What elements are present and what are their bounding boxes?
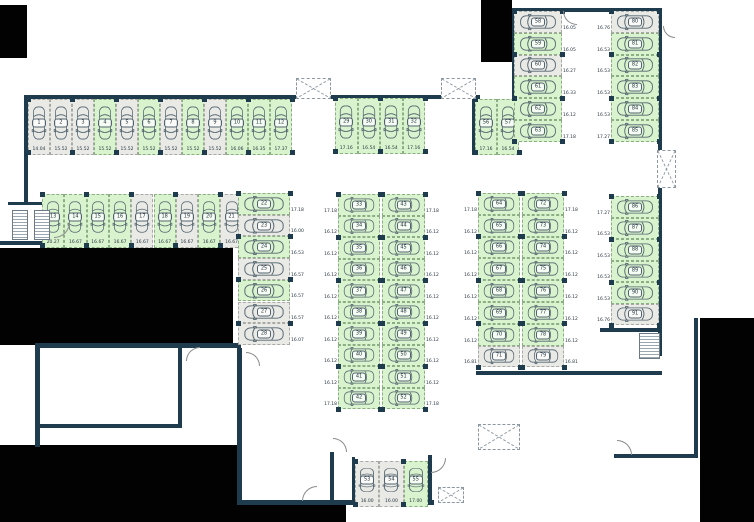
void-area [700,318,754,522]
column-marker [218,243,223,248]
vent-shaft-icon [657,150,676,188]
stall-number: 53 [360,476,374,485]
column-marker [520,321,525,326]
column-marker [560,139,565,144]
stall-number: 64 [492,199,506,208]
parking-stall-77[interactable]: 7716.12 [522,302,564,324]
column-marker [378,149,383,154]
stall-number: 58 [531,17,545,26]
parking-stall-28[interactable]: 2816.07 [238,323,290,345]
stall-number: 85 [628,126,642,135]
stall-size-label: 16.53 [597,297,610,303]
parking-stall-5[interactable]: 515.52 [116,99,138,155]
stall-size-label: 16.12 [324,252,337,258]
parking-stall-88[interactable]: 8816.53 [611,239,659,261]
stall-size-label: 15.52 [143,147,156,153]
parking-stall-50[interactable]: 5016.12 [382,345,425,367]
stall-size-label: 16.12 [565,317,578,323]
parking-stall-82[interactable]: 8216.53 [611,55,659,77]
stall-number: 38 [352,308,366,317]
stall-number: 39 [352,329,366,338]
parking-stall-60[interactable]: 6016.27 [514,55,562,77]
parking-stall-59[interactable]: 5916.05 [514,33,562,55]
parking-stall-81[interactable]: 8116.53 [611,33,659,55]
stall-size-label: 16.12 [426,273,439,279]
parking-stall-31[interactable]: 3116.54 [380,98,403,154]
column-marker [246,150,251,155]
stall-number: 52 [397,394,411,403]
stall-number: 77 [536,308,550,317]
column-marker [129,192,134,197]
column-marker [560,96,565,101]
column-marker [473,150,478,155]
stairs-icon [639,333,660,359]
parking-stall-87[interactable]: 8716.53 [611,218,659,240]
stall-number: 88 [628,245,642,254]
parking-stall-62[interactable]: 6216.12 [514,98,562,120]
stall-number: 73 [536,221,550,230]
parking-stall-90[interactable]: 9016.53 [611,282,659,304]
parking-stall-73[interactable]: 7316.12 [522,215,564,237]
stall-size-label: 15.52 [55,147,68,153]
stall-size-label: 16.12 [565,251,578,257]
column-marker [290,150,295,155]
stall-size-label: 15.52 [77,147,90,153]
column-marker [380,407,385,412]
parking-stall-74[interactable]: 7416.12 [522,237,564,259]
column-marker [562,365,567,370]
stall-number: 24 [257,243,271,252]
stall-number: 45 [397,243,411,252]
column-marker [26,97,31,102]
stall-size-label: 16.00 [361,499,374,505]
stall-number: 12 [274,119,288,128]
stall-number: 15 [91,213,105,222]
stairs-icon [12,210,28,240]
void-area [0,5,27,58]
parking-stall-66[interactable]: 6616.12 [478,237,520,259]
stall-size-label: 16.12 [563,113,576,119]
parking-stall-26[interactable]: 2616.57 [238,280,290,302]
door-arc [663,26,675,38]
column-marker [520,191,525,196]
parking-stall-19[interactable]: 1916.67 [176,194,198,248]
column-marker [657,280,662,285]
wall [694,318,698,458]
stall-number: 34 [352,222,366,231]
column-marker [423,278,428,283]
parking-stall-9[interactable]: 915.52 [204,99,226,155]
parking-stall-34[interactable]: 3416.12 [338,216,380,238]
stall-number: 21 [225,213,239,222]
column-marker [423,235,428,240]
column-marker [657,9,662,14]
column-marker [380,364,385,369]
stall-number: 25 [257,264,271,273]
stall-size-label: 16.12 [426,230,439,236]
stall-size-label: 15.52 [209,147,222,153]
parking-stall-63[interactable]: 6317.18 [514,120,562,142]
stall-number: 54 [384,476,398,485]
stall-size-label: 16.05 [563,48,576,54]
stall-number: 6 [142,119,156,128]
column-marker [423,192,428,197]
column-marker [562,234,567,239]
parking-stall-2[interactable]: 215.52 [50,99,72,155]
door-arc [302,486,317,501]
column-marker [246,97,251,102]
column-marker [336,321,341,326]
stall-number: 46 [397,265,411,274]
column-marker [333,96,338,101]
stall-size-label: 17.18 [464,208,477,214]
column-marker [40,192,45,197]
parking-stall-68[interactable]: 6816.12 [478,280,520,302]
column-marker [512,96,517,101]
stall-size-label: 16.67 [180,240,193,246]
stall-number: 18 [158,213,172,222]
parking-stall-76[interactable]: 7616.12 [522,280,564,302]
void-area [481,0,512,62]
stall-size-label: 16.05 [563,26,576,32]
stall-number: 69 [492,308,506,317]
parking-stall-91[interactable]: 9116.76 [611,304,659,326]
stall-size-label: 14.04 [33,147,46,153]
column-marker [70,97,75,102]
stall-number: 71 [492,352,506,361]
stall-number: 4 [98,119,112,128]
parking-stall-29[interactable]: 2917.16 [335,98,358,154]
stall-size-label: 17.16 [340,146,353,152]
column-marker [609,323,614,328]
stall-size-label: 16.81 [565,360,578,366]
stall-size-label: 16.12 [464,339,477,345]
parking-stall-11[interactable]: 1116.35 [248,99,270,155]
column-marker [401,459,406,464]
column-marker [70,150,75,155]
parking-stall-83[interactable]: 8316.53 [611,76,659,98]
parking-stall-18[interactable]: 1816.67 [154,194,176,248]
column-marker [380,235,385,240]
column-marker [158,150,163,155]
stall-size-label: 17.27 [597,211,610,217]
column-marker [609,9,614,14]
stall-number: 8 [186,119,200,128]
parking-stall-1[interactable]: 114.04 [28,99,50,155]
parking-stall-22[interactable]: 2217.18 [238,193,290,215]
stall-number: 35 [352,243,366,252]
stall-number: 50 [397,351,411,360]
column-marker [423,407,428,412]
column-marker [609,194,614,199]
stall-size-label: 16.76 [597,26,610,32]
stall-number: 10 [230,119,244,128]
stall-number: 11 [252,119,266,128]
parking-stall-89[interactable]: 8916.53 [611,261,659,283]
stall-number: 37 [352,286,366,295]
stall-number: 56 [479,119,493,128]
parking-stall-36[interactable]: 3616.12 [338,259,380,281]
stall-size-label: 17.00 [409,499,422,505]
parking-stall-55[interactable]: 5517.00 [404,461,428,507]
stall-number: 79 [536,352,550,361]
parking-stall-7[interactable]: 715.52 [160,99,182,155]
parking-stall-51[interactable]: 5116.12 [382,366,425,388]
parking-stall-14[interactable]: 1416.67 [64,194,86,248]
column-marker [353,502,358,507]
stall-number: 47 [397,286,411,295]
parking-stall-12[interactable]: 1217.37 [270,99,292,155]
stall-number: 72 [536,199,550,208]
column-marker [520,278,525,283]
stall-number: 51 [397,372,411,381]
stall-number: 74 [536,243,550,252]
column-marker [129,243,134,248]
parking-stall-52[interactable]: 5217.18 [382,388,425,410]
column-marker [290,97,295,102]
column-marker [512,52,517,57]
stall-size-label: 17.18 [324,209,337,215]
vent-shaft-icon [296,78,331,99]
column-marker [423,364,428,369]
stall-size-label: 16.67 [225,240,238,246]
parking-stall-25[interactable]: 2516.57 [238,258,290,280]
stall-number: 31 [384,118,398,127]
parking-stall-85[interactable]: 8517.27 [611,120,659,142]
stall-number: 67 [492,265,506,274]
parking-stall-38[interactable]: 3816.12 [338,302,380,324]
stall-number: 44 [397,222,411,231]
column-marker [562,191,567,196]
stall-size-label: 15.52 [121,147,134,153]
stall-size-label: 16.12 [426,316,439,322]
column-marker [609,96,614,101]
parking-stall-43[interactable]: 4317.18 [382,194,425,216]
parking-stall-27[interactable]: 2716.57 [238,302,290,324]
column-marker [336,278,341,283]
column-marker [657,96,662,101]
column-marker [657,194,662,199]
parking-stall-53[interactable]: 5316.00 [355,461,379,507]
column-marker [657,237,662,242]
column-marker [380,321,385,326]
stall-size-label: 17.18 [426,402,439,408]
parking-stall-32[interactable]: 3217.16 [403,98,426,154]
stall-size-label: 16.12 [426,381,439,387]
column-marker [380,192,385,197]
stall-number: 82 [628,61,642,70]
column-marker [476,234,481,239]
column-marker [173,243,178,248]
column-marker [288,321,293,326]
stall-size-label: 16.12 [426,252,439,258]
column-marker [476,278,481,283]
parking-stall-17[interactable]: 1716.67 [131,194,153,248]
stall-size-label: 16.06 [231,147,244,153]
parking-stall-78[interactable]: 7816.12 [522,324,564,346]
parking-stall-23[interactable]: 2316.00 [238,215,290,237]
stall-number: 70 [492,330,506,339]
column-marker [336,192,341,197]
stall-size-label: 16.67 [114,240,127,246]
column-marker [560,52,565,57]
column-marker [288,191,293,196]
stall-number: 59 [531,39,545,48]
column-marker [476,321,481,326]
parking-stall-6[interactable]: 615.52 [138,99,160,155]
parking-stall-80[interactable]: 8016.76 [611,11,659,33]
parking-stall-75[interactable]: 7516.12 [522,258,564,280]
column-marker [336,364,341,369]
parking-stall-45[interactable]: 4516.12 [382,237,425,259]
stall-size-label: 16.12 [426,338,439,344]
stall-size-label: 17.16 [480,147,493,153]
parking-stall-86[interactable]: 8617.27 [611,196,659,218]
door-arc [563,11,577,25]
wall [476,371,662,375]
stall-size-label: 16.54 [362,146,375,152]
column-marker [657,139,662,144]
stall-size-label: 16.67 [69,240,82,246]
void-area [0,445,242,522]
parking-stall-48[interactable]: 4816.12 [382,302,425,324]
parking-stall-24[interactable]: 2416.53 [238,236,290,258]
stairs-icon [34,210,50,240]
column-marker [353,459,358,464]
parking-stall-84[interactable]: 8416.53 [611,98,659,120]
stall-size-label: 16.57 [291,316,304,322]
parking-stall-67[interactable]: 6716.12 [478,258,520,280]
stall-number: 91 [628,310,642,319]
parking-stall-16[interactable]: 1616.67 [109,194,131,248]
stall-size-label: 16.12 [324,381,337,387]
parking-stall-46[interactable]: 4616.12 [382,259,425,281]
parking-stall-4[interactable]: 415.52 [94,99,116,155]
column-marker [84,192,89,197]
column-marker [657,323,662,328]
column-marker [378,96,383,101]
stall-number: 30 [362,118,376,127]
column-marker [288,234,293,239]
void-area [242,505,346,522]
stall-number: 17 [135,213,149,222]
stall-number: 68 [492,287,506,296]
stall-number: 63 [531,126,545,135]
stall-number: 1 [32,119,46,128]
parking-stall-39[interactable]: 3916.12 [338,323,380,345]
column-marker [562,278,567,283]
stall-size-label: 16.12 [464,295,477,301]
parking-stall-15[interactable]: 1516.67 [87,194,109,248]
parking-stall-30[interactable]: 3016.54 [358,98,381,154]
parking-stall-42[interactable]: 4217.18 [338,388,380,410]
parking-stall-47[interactable]: 4716.12 [382,280,425,302]
stall-size-label: 16.67 [203,240,216,246]
stall-number: 60 [531,61,545,70]
parking-stall-44[interactable]: 4416.12 [382,216,425,238]
parking-stall-40[interactable]: 4016.12 [338,345,380,367]
stall-size-label: 16.33 [563,91,576,97]
stall-number: 28 [257,330,271,339]
parking-stall-69[interactable]: 6916.12 [478,302,520,324]
column-marker [520,365,525,370]
stall-number: 65 [492,221,506,230]
stall-number: 16 [113,213,127,222]
door-arc [617,440,632,455]
parking-stall-65[interactable]: 6516.12 [478,215,520,237]
stall-number: 33 [352,200,366,209]
parking-stall-61[interactable]: 6116.33 [514,76,562,98]
stall-number: 62 [531,105,545,114]
column-marker [512,139,517,144]
stall-number: 14 [68,213,82,222]
column-marker [401,502,406,507]
column-marker [520,234,525,239]
stall-size-label: 15.52 [165,147,178,153]
parking-stall-49[interactable]: 4916.12 [382,323,425,345]
parking-stall-54[interactable]: 5416.00 [379,461,403,507]
parking-stall-79[interactable]: 7916.81 [522,346,564,368]
stall-number: 40 [352,351,366,360]
stall-number: 5 [120,119,134,128]
stall-size-label: 16.12 [565,273,578,279]
stall-size-label: 16.12 [565,295,578,301]
stall-number: 89 [628,267,642,276]
column-marker [336,235,341,240]
column-marker [657,52,662,57]
stall-number: 36 [352,265,366,274]
parking-stall-41[interactable]: 4116.12 [338,366,380,388]
stall-size-label: 16.00 [291,229,304,235]
stall-number: 86 [628,202,642,211]
stall-number: 75 [536,265,550,274]
stall-number: 90 [628,288,642,297]
stall-size-label: 16.57 [291,294,304,300]
column-marker [40,243,45,248]
parking-stall-72[interactable]: 7217.18 [522,193,564,215]
parking-stall-10[interactable]: 1016.06 [226,99,248,155]
parking-stall-70[interactable]: 7016.12 [478,324,520,346]
stall-number: 80 [628,17,642,26]
parking-stall-56[interactable]: 5617.16 [475,99,497,155]
parking-stall-37[interactable]: 3716.12 [338,280,380,302]
stall-size-label: 16.54 [502,147,515,153]
column-marker [423,321,428,326]
stall-size-label: 20.27 [47,240,60,246]
column-marker [236,191,241,196]
column-marker [288,277,293,282]
parking-stall-8[interactable]: 815.52 [182,99,204,155]
parking-stall-20[interactable]: 2016.67 [198,194,220,248]
stall-size-label: 16.53 [597,69,610,75]
stall-size-label: 16.67 [91,240,104,246]
parking-stall-3[interactable]: 315.52 [72,99,94,155]
door-arc [431,458,446,473]
door-arc [186,347,200,361]
parking-stall-35[interactable]: 3516.12 [338,237,380,259]
stall-number: 23 [257,221,271,230]
stall-size-label: 16.53 [291,251,304,257]
door-arc [333,438,347,452]
column-marker [562,321,567,326]
parking-stall-58[interactable]: 5816.05 [514,11,562,33]
stall-size-label: 17.18 [563,135,576,141]
wall [330,452,334,504]
parking-stall-64[interactable]: 6417.18 [478,193,520,215]
parking-stall-71[interactable]: 7116.81 [478,346,520,368]
parking-stall-33[interactable]: 3317.18 [338,194,380,216]
stall-number: 83 [628,83,642,92]
